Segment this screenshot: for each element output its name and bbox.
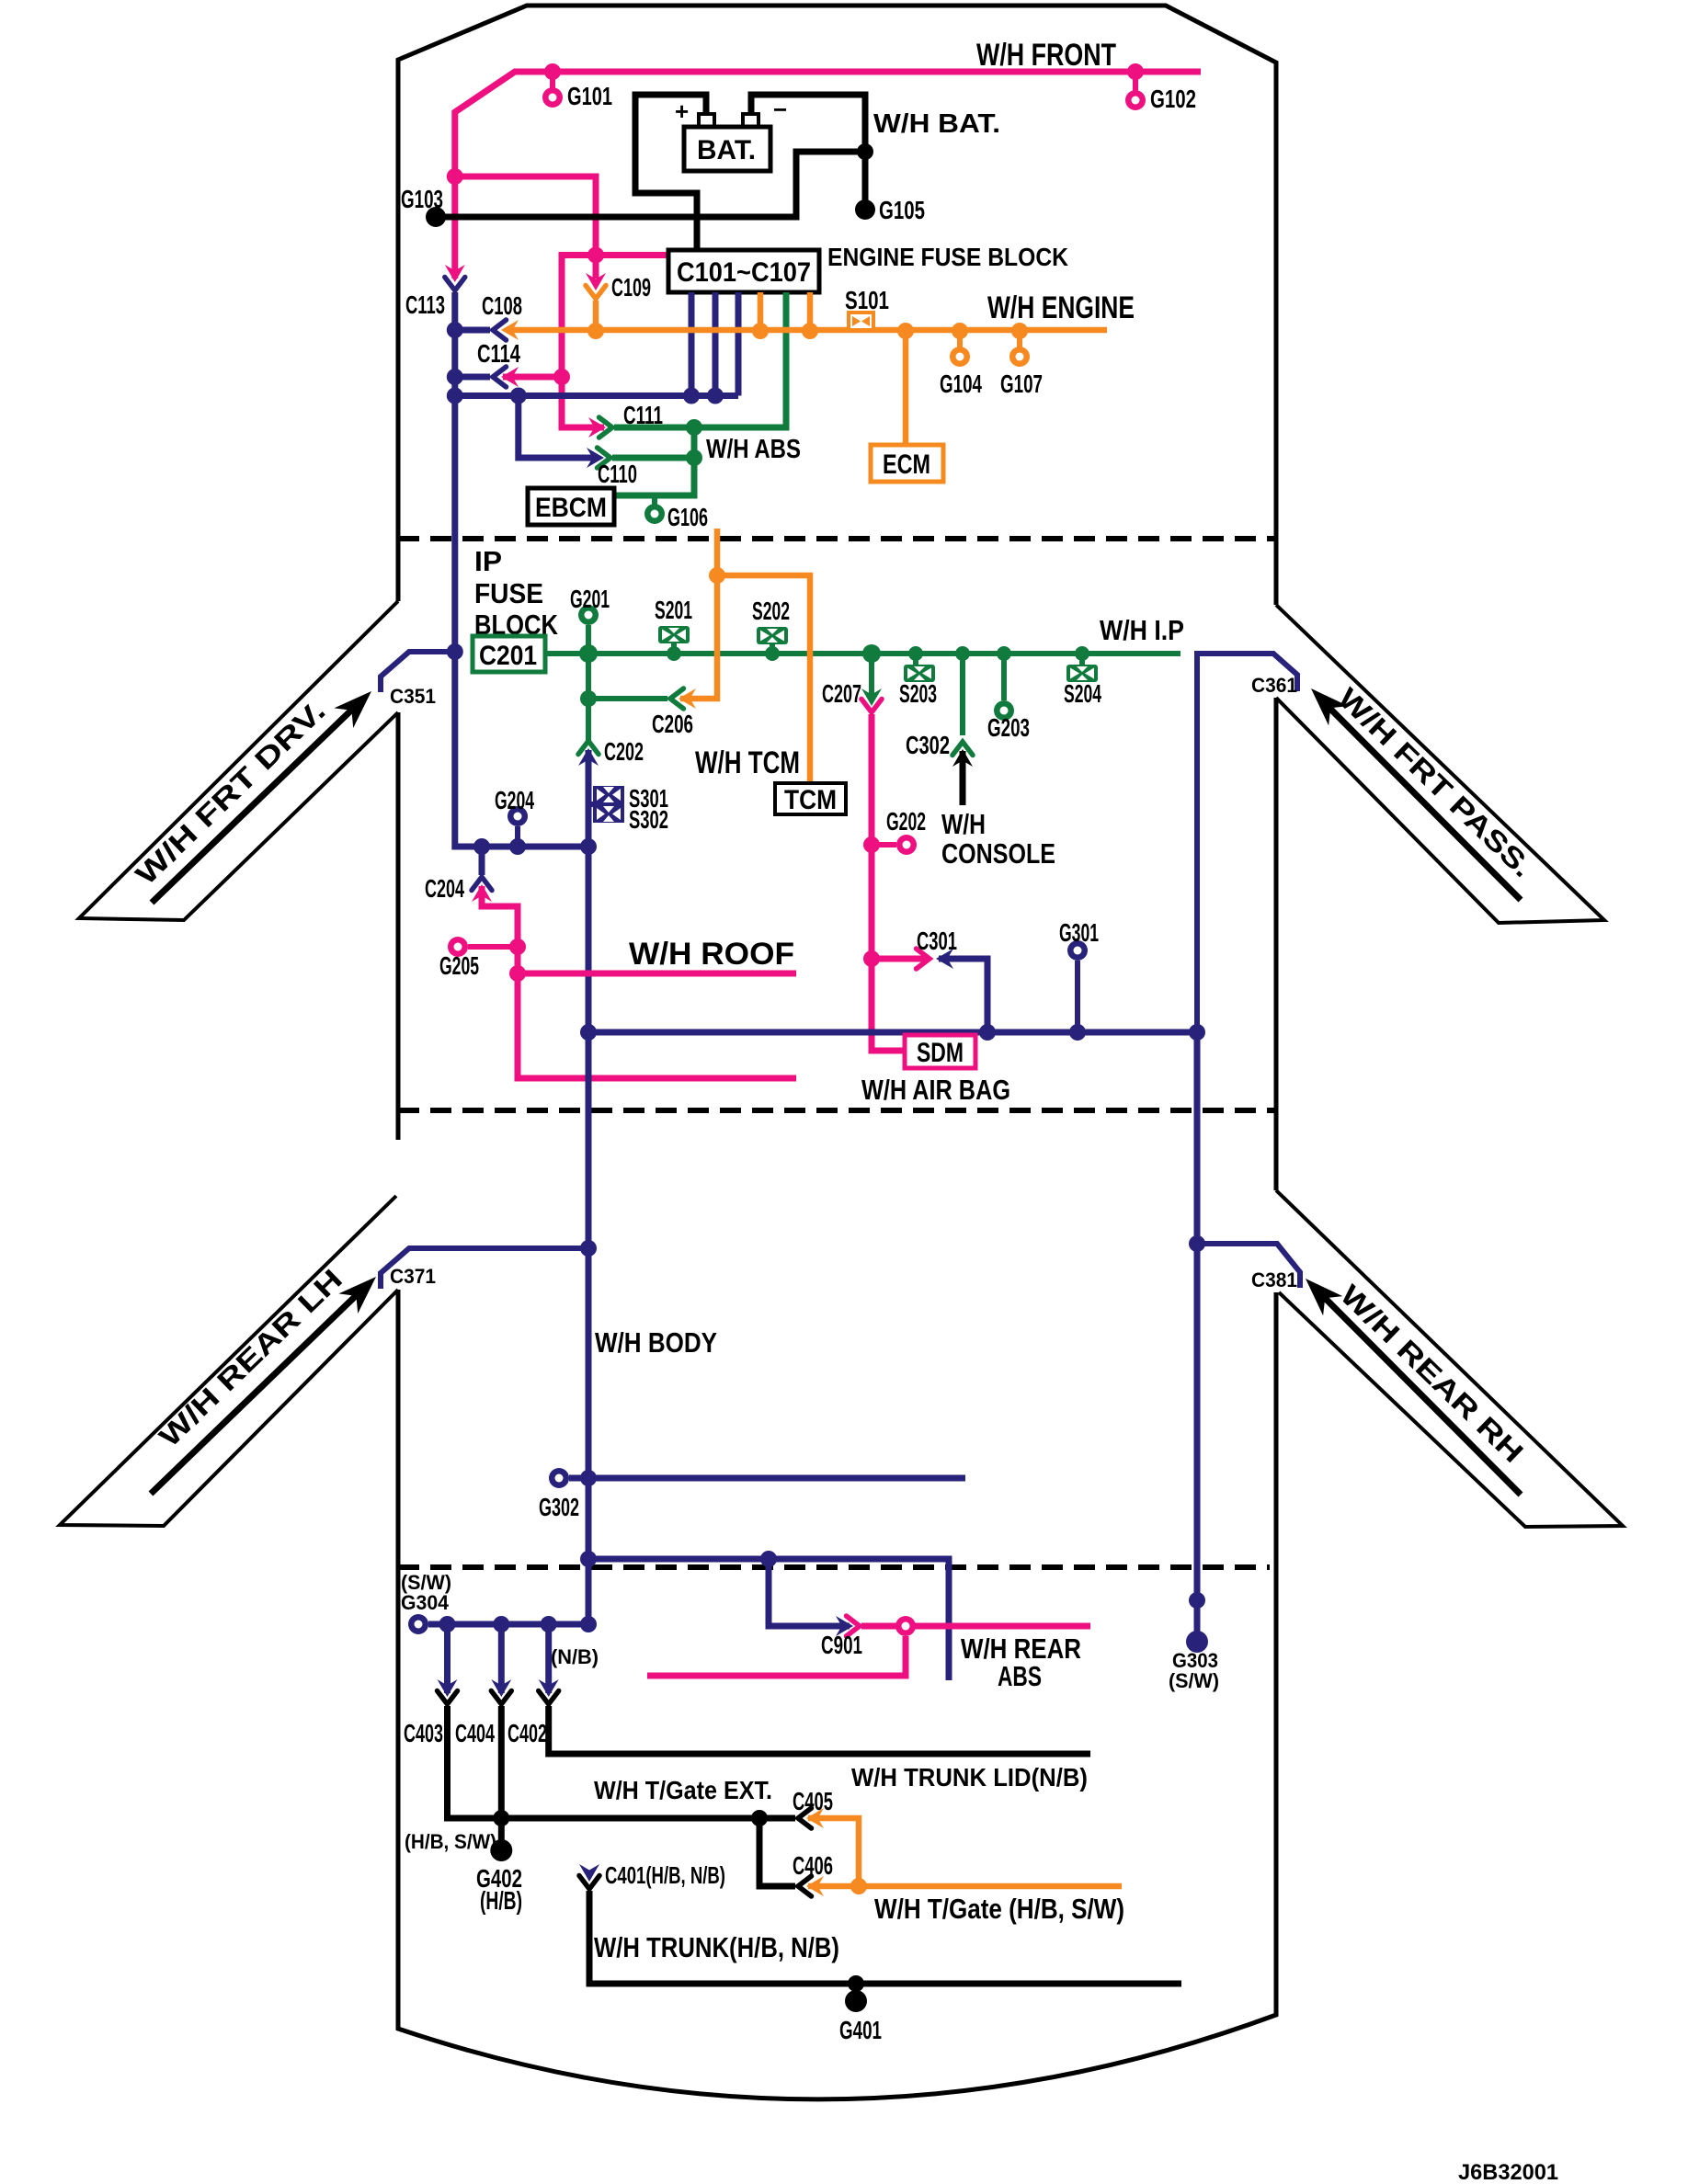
svg-text:(S/W): (S/W) [1169,1669,1219,1692]
svg-text:W/H: W/H [941,808,986,840]
svg-text:BAT.: BAT. [697,135,756,165]
svg-text:W/H TCM: W/H TCM [695,745,800,780]
svg-text:C406: C406 [793,1851,833,1880]
svg-text:G101: G101 [567,82,612,110]
svg-text:ECM: ECM [883,449,930,480]
svg-text:S203: S203 [899,679,937,708]
svg-text:C108: C108 [482,291,522,320]
svg-text:G105: G105 [879,196,925,224]
svg-text:C204: C204 [425,874,464,903]
svg-text:W/H T/Gate EXT.: W/H T/Gate EXT. [594,1776,772,1804]
svg-text:W/H I.P: W/H I.P [1100,614,1184,646]
svg-text:W/H ENGINE: W/H ENGINE [987,290,1135,325]
svg-text:W/H BODY: W/H BODY [595,1326,717,1359]
svg-text:S204: S204 [1064,679,1101,708]
svg-text:CONSOLE: CONSOLE [941,837,1055,870]
svg-text:W/H AIR BAG: W/H AIR BAG [861,1074,1010,1106]
svg-text:G202: G202 [886,807,926,836]
svg-text:C207: C207 [822,679,861,708]
svg-text:C361: C361 [1251,674,1297,697]
svg-text:C206: C206 [652,710,693,738]
svg-text:W/H TRUNK LID(N/B): W/H TRUNK LID(N/B) [851,1763,1088,1792]
svg-text:G205: G205 [439,951,479,980]
svg-text:W/H T/Gate (H/B, S/W): W/H T/Gate (H/B, S/W) [874,1893,1124,1925]
svg-text:W/H ROOF: W/H ROOF [629,937,794,972]
svg-text:C110: C110 [598,460,637,488]
svg-text:C403: C403 [404,1719,443,1747]
svg-text:G301: G301 [1059,918,1099,947]
svg-text:C404: C404 [455,1719,495,1747]
svg-text:W/H FRONT: W/H FRONT [976,38,1116,73]
svg-text:G103: G103 [401,185,443,213]
svg-text:C371: C371 [390,1265,436,1288]
svg-text:C109: C109 [611,273,651,301]
svg-text:G106: G106 [667,503,708,531]
svg-text:S302: S302 [629,805,668,834]
svg-text:C302: C302 [906,731,950,759]
svg-text:C402: C402 [508,1719,547,1747]
svg-text:(N/B): (N/B) [551,1645,599,1668]
svg-text:G304: G304 [401,1591,450,1614]
svg-text:S101: S101 [845,286,889,314]
svg-text:ABS: ABS [998,1660,1042,1692]
svg-text:G204: G204 [495,786,534,814]
svg-text:G102: G102 [1150,85,1196,113]
svg-text:G302: G302 [539,1493,579,1521]
svg-text:C351: C351 [390,685,436,708]
svg-text:C301: C301 [917,927,957,955]
svg-text:C401(H/B, N/B): C401(H/B, N/B) [605,1861,725,1889]
svg-text:W/H BAT.: W/H BAT. [873,109,1000,139]
svg-text:C381: C381 [1251,1268,1297,1291]
svg-text:C113: C113 [405,290,445,319]
svg-text:G201: G201 [570,585,610,613]
svg-text:C201: C201 [479,641,537,671]
svg-text:C101~C107: C101~C107 [677,257,811,288]
svg-text:S201: S201 [655,596,692,624]
svg-text:C114: C114 [477,339,520,368]
svg-text:C202: C202 [604,737,644,766]
svg-text:C111: C111 [623,401,663,429]
svg-text:ENGINE FUSE BLOCK: ENGINE FUSE BLOCK [827,243,1068,271]
svg-text:G203: G203 [987,713,1030,742]
svg-text:SDM: SDM [917,1038,964,1068]
svg-text:G104: G104 [940,370,982,398]
svg-text:TCM: TCM [784,785,837,815]
svg-text:G401: G401 [839,2016,882,2044]
svg-text:+: + [675,97,689,125]
svg-text:C405: C405 [793,1787,833,1815]
svg-text:(H/B): (H/B) [480,1886,522,1915]
svg-text:W/H ABS: W/H ABS [706,435,801,464]
svg-text:EBCM: EBCM [535,493,607,523]
svg-text:FUSE: FUSE [474,577,543,609]
svg-text:G107: G107 [1000,370,1043,398]
svg-text:−: − [773,96,787,123]
svg-text:IP: IP [474,545,502,577]
svg-text:W/H TRUNK(H/B, N/B): W/H TRUNK(H/B, N/B) [594,1931,839,1963]
svg-text:S202: S202 [752,597,790,625]
svg-text:C901: C901 [821,1631,862,1659]
svg-text:(H/B, S/W): (H/B, S/W) [405,1830,496,1853]
svg-text:J6B32001: J6B32001 [1458,2160,1558,2184]
